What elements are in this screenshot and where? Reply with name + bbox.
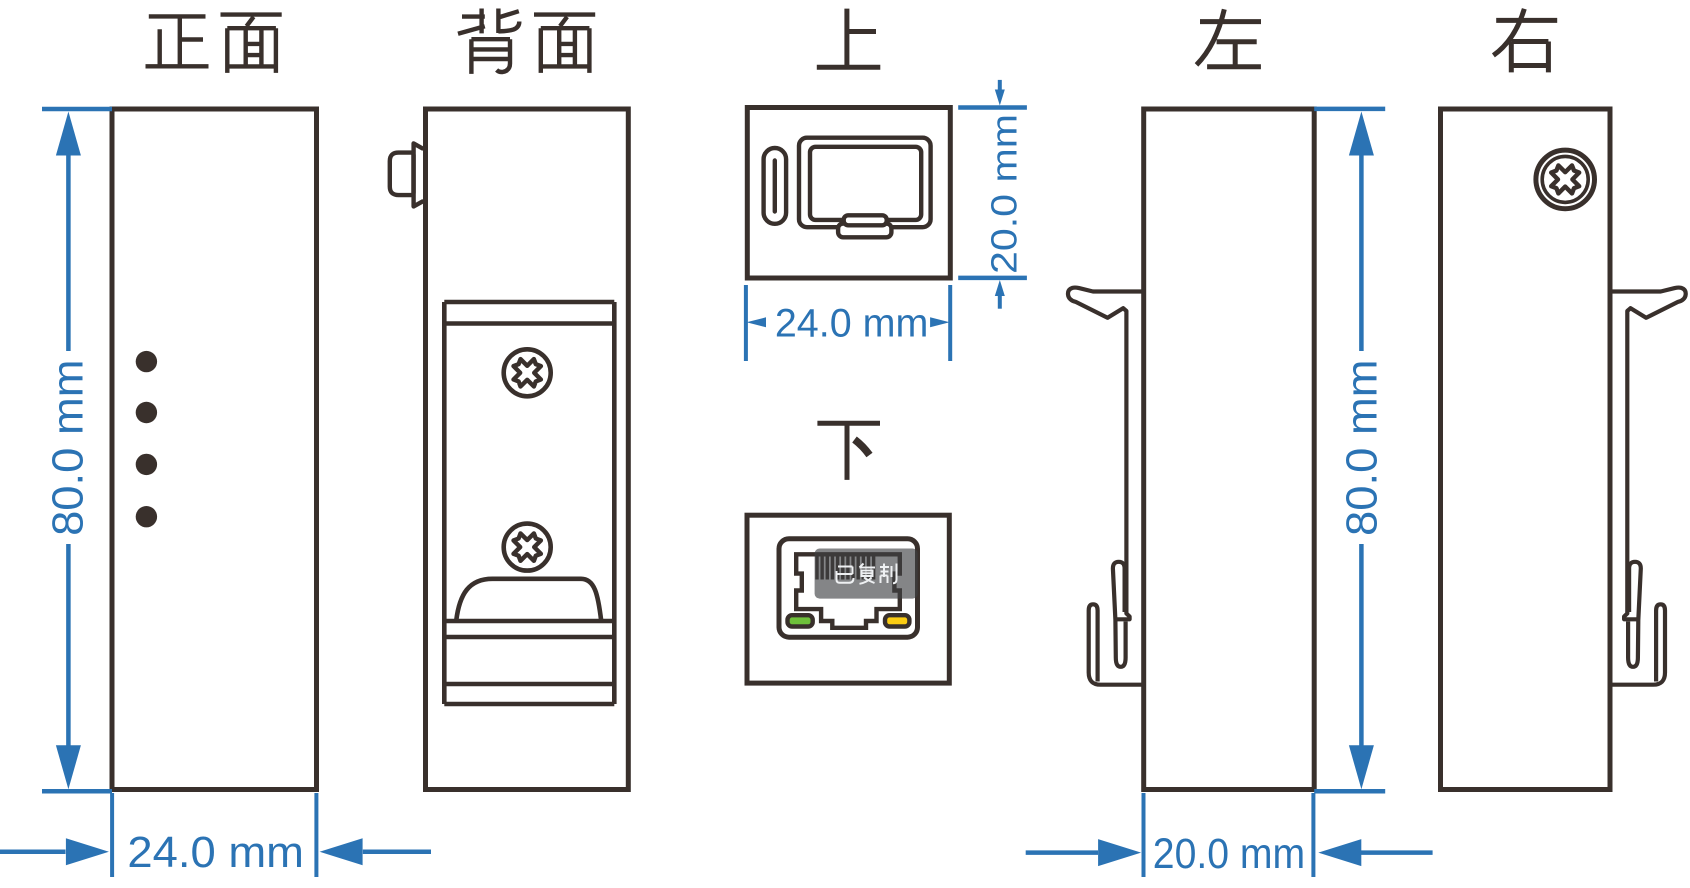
svg-text:24.0 mm: 24.0 mm (127, 828, 304, 877)
svg-text:24.0 mm: 24.0 mm (775, 302, 929, 346)
svg-text:20.0 mm: 20.0 mm (984, 114, 1025, 274)
svg-text:20.0 mm: 20.0 mm (1153, 830, 1305, 878)
svg-text:80.0 mm: 80.0 mm (43, 359, 92, 536)
svg-text:80.0 mm: 80.0 mm (1338, 359, 1387, 536)
